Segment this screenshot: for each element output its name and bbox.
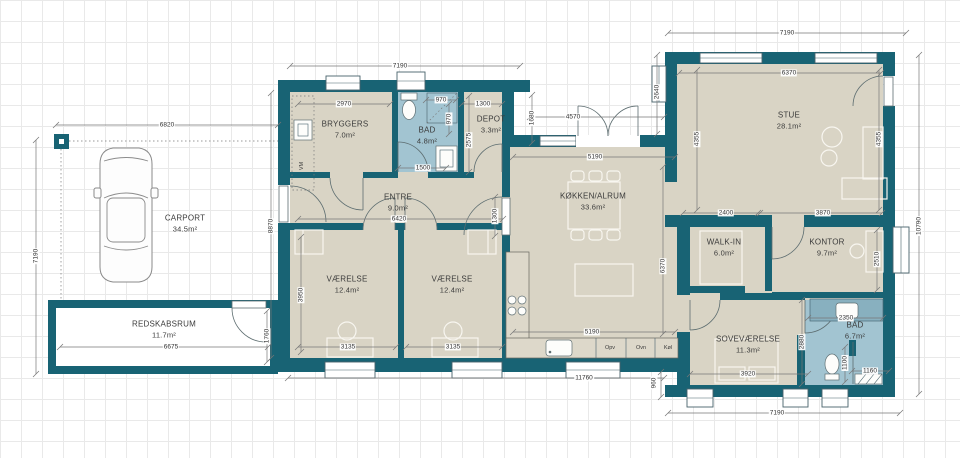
room-label-bryggers: BRYGGERS7.0m² [322, 120, 369, 141]
shed-door [232, 301, 266, 308]
dimension-label: 6370 [781, 69, 797, 76]
room-name: BAD [845, 321, 865, 332]
dimension-label: 2970 [336, 100, 352, 107]
dimension-label: 5190 [584, 328, 600, 335]
room-name: WALK-IN [707, 238, 741, 249]
dimension-label: 2510 [873, 251, 880, 267]
toilet [825, 354, 839, 374]
room-area: 6.0m² [707, 248, 741, 258]
dimension-label: 1760 [263, 328, 270, 344]
dimension-label: 3950 [297, 287, 304, 303]
room-name: KØKKEN/ALRUM [560, 192, 626, 203]
room-name: BRYGGERS [322, 120, 369, 131]
dimension-label: 6820 [159, 121, 175, 128]
dimension-label: 3920 [740, 370, 756, 377]
dimension-label: 7190 [769, 409, 785, 416]
dimension-label: 2400 [718, 209, 734, 216]
dimension-label: 1680 [528, 110, 535, 126]
dimension-label: 3135 [340, 343, 356, 350]
room-label-kontor: KONTOR9.7m² [809, 238, 844, 259]
toilet-tank [401, 93, 417, 100]
room-area: 9.7m² [809, 248, 844, 258]
dimension-label: 1500 [415, 164, 431, 171]
room-label-entre: ENTRE9.0m² [384, 193, 412, 214]
dimension-label: 6370 [659, 258, 666, 274]
dimension-label: 6420 [391, 215, 407, 222]
room-name: VÆRELSE [432, 275, 473, 286]
toilet-tank [825, 374, 839, 380]
appliance-label-opv: Opv [605, 345, 615, 351]
appliance-label-koel: Køl [664, 345, 672, 351]
kitchen-sink [546, 340, 572, 356]
appliance-label-ovn: Ovn [636, 345, 646, 351]
dimension-label: 7190 [392, 62, 408, 69]
utility-sink [294, 120, 312, 140]
floor-plan-drawing [0, 0, 960, 458]
toilet [403, 101, 416, 120]
room-area: 12.4m² [327, 285, 368, 295]
cooktop-burner [518, 296, 526, 304]
room-label-bad2: BAD6.7m² [845, 321, 865, 342]
room-area: 9.0m² [384, 203, 412, 213]
dimension-label: 3135 [445, 343, 461, 350]
room-name: VÆRELSE [327, 275, 368, 286]
dimension-label: 2575 [465, 132, 472, 148]
dimension-label: 970 [445, 113, 452, 126]
room-area: 34.5m² [165, 224, 205, 234]
dimension-label: 10790 [915, 216, 922, 236]
dimension-label: 4355 [693, 131, 700, 147]
room-area: 28.1m² [777, 121, 802, 131]
floor-plan-canvas: 7190719068207190887029709709701300257515… [0, 0, 960, 458]
dimension-label: 1300 [491, 208, 498, 224]
room-label-vaerelse1: VÆRELSE12.4m² [327, 275, 368, 296]
dimension-label: 1100 [841, 355, 848, 371]
room-label-depot: DEPOT3.3m² [477, 115, 506, 136]
room-name: ENTRE [384, 193, 412, 204]
dimension-label: 11760 [574, 374, 594, 381]
cooktop-burner [508, 307, 516, 315]
car-icon [94, 148, 158, 282]
room-label-bad1: BAD4.8m² [417, 126, 437, 147]
terrace-door [884, 77, 893, 106]
dimension-label: 1300 [475, 100, 491, 107]
dimension-label: 8870 [267, 218, 274, 234]
interior-door [502, 198, 510, 235]
room-area: 12.4m² [432, 285, 473, 295]
cooktop-burner [518, 307, 526, 315]
room-label-vaerelse2: VÆRELSE12.4m² [432, 275, 473, 296]
room-name: BAD [417, 126, 437, 137]
dimension-label: 5190 [587, 153, 603, 160]
dimension-label: 2880 [798, 334, 805, 350]
dimension-label: 960 [650, 377, 657, 390]
dimension-label: 3870 [815, 209, 831, 216]
dimension-label: 1160 [862, 367, 878, 374]
tall-cabinet [506, 252, 529, 340]
dimension-label: 6675 [163, 343, 179, 350]
room-area: 11.7m² [132, 330, 196, 340]
room-name: KONTOR [809, 238, 844, 249]
cooktop-burner [508, 296, 516, 304]
room-label-sovevaerelse: SOVEVÆRELSE11.3m² [716, 335, 780, 356]
room-area: 4.8m² [417, 136, 437, 146]
dimension-label: 4570 [565, 113, 581, 120]
room-area: 33.6m² [560, 202, 626, 212]
room-area: 3.3m² [477, 125, 506, 135]
room-area: 7.0m² [322, 130, 369, 140]
dimension-label: 7190 [32, 248, 39, 264]
room-label-stue: STUE28.1m² [777, 111, 802, 132]
room-name: REDSKABSRUM [132, 320, 196, 331]
entrance-door [279, 186, 288, 222]
room-label-walkin: WALK-IN6.0m² [707, 238, 741, 259]
dimension-label: 970 [435, 96, 448, 103]
room-name: STUE [777, 111, 802, 122]
room-name: SOVEVÆRELSE [716, 335, 780, 346]
kitchen-counter [506, 338, 678, 358]
room-label-redskabsrum: REDSKABSRUM11.7m² [132, 320, 196, 341]
room-name: CARPORT [165, 214, 205, 225]
dimension-label: 4355 [875, 131, 882, 147]
room-label-koekken: KØKKEN/ALRUM33.6m² [560, 192, 626, 213]
dimension-label: 2640 [653, 84, 660, 100]
room-area: 6.7m² [845, 331, 865, 341]
room-area: 11.3m² [716, 345, 780, 355]
appliance-label-vm: VM [299, 162, 305, 170]
livingroom-floor [677, 64, 883, 215]
dimension-label: 7190 [779, 29, 795, 36]
room-name: DEPOT [477, 115, 506, 126]
room-label-carport: CARPORT34.5m² [165, 214, 205, 235]
